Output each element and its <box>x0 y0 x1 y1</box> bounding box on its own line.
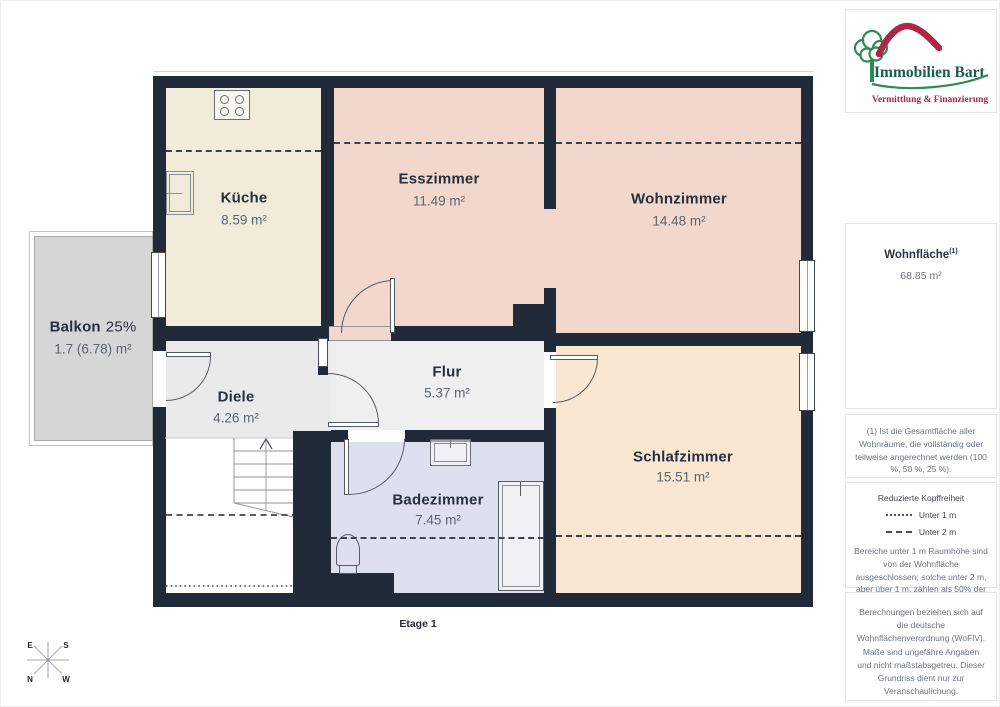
company-logo: Immobilien Bart Vermittlung & Finanzieru… <box>846 10 996 112</box>
door-leaf-esszimmer <box>390 278 395 333</box>
burner-icon <box>220 95 229 104</box>
compass-icon: E S N W <box>21 633 75 687</box>
room-area-flur: 5.37 m² <box>424 386 470 401</box>
wall-top <box>153 76 813 88</box>
logo-card: Immobilien Bart Vermittlung & Finanzieru… <box>845 9 997 113</box>
logo-tagline-text: Vermittlung & Finanzierung <box>872 95 989 105</box>
door-opening-balkon <box>153 351 166 407</box>
window-glazing <box>158 253 159 317</box>
room-area-schlafzimmer: 15.51 m² <box>656 470 709 485</box>
room-area-esszimmer: 11.49 m² <box>413 194 465 209</box>
disclaimer-text: Berechnungen beziehen sich auf die deuts… <box>855 606 987 698</box>
room-label-esszimmer: Esszimmer <box>398 171 479 188</box>
disclaimer-card: Berechnungen beziehen sich auf die deuts… <box>845 592 997 701</box>
living-area-card: Wohnfläche(1) 68.85 m² <box>845 223 997 409</box>
room-label-wohnzimmer: Wohnzimmer <box>631 191 727 208</box>
room-label-flur: Flur <box>432 364 461 381</box>
wall-wohn-bottom <box>556 333 813 346</box>
footnote-marker: (1) <box>949 248 958 255</box>
staircase <box>165 431 294 597</box>
floorplan-page: Küche 8.59 m² Esszimmer 11.49 m² Wohnzim… <box>0 0 1000 707</box>
room-label-badezimmer: Badezimmer <box>392 492 483 509</box>
dashed-line-sample <box>886 531 912 533</box>
roof-swoosh <box>879 26 939 54</box>
balkon-name: Balkon <box>50 319 101 336</box>
room-floor-wohnzimmer <box>556 88 801 333</box>
living-area-value: 68.85 m² <box>846 270 996 282</box>
sink-tap <box>450 440 451 448</box>
door-leaf-badezimmer <box>344 439 349 495</box>
stove-icon <box>214 90 250 120</box>
wall-ess-wohn-bottom <box>544 288 556 341</box>
burner-icon <box>235 95 244 104</box>
headroom-line-kueche <box>166 150 321 152</box>
legend-row-under-2m: Unter 2 m <box>846 527 996 537</box>
headroom-line-badezimmer <box>331 537 544 539</box>
room-area-diele: 4.26 m² <box>213 411 259 426</box>
wall-corner-block <box>513 304 544 341</box>
counter-handle <box>167 193 182 194</box>
footnote-text: (1) Ist die Gesamtfläche aller Wohnräume… <box>854 425 988 476</box>
room-label-diele: Diele <box>218 389 255 406</box>
window-wohnzimmer <box>799 260 815 332</box>
wall-bad-step <box>331 573 394 593</box>
headroom-line-wohnzimmer <box>556 142 801 144</box>
compass-west: W <box>62 675 70 684</box>
shower-tray <box>502 485 540 587</box>
compass-south: S <box>63 641 69 650</box>
eaves-line <box>153 71 813 72</box>
door-leaf-diele-flur <box>328 422 379 427</box>
window-kueche <box>151 252 166 318</box>
shower-icon <box>498 481 544 591</box>
wall-band-left <box>166 326 329 341</box>
kitchen-counter <box>166 171 194 215</box>
room-label-balkon: Balkon25% <box>50 319 137 336</box>
door-leaf-balkon <box>166 352 211 357</box>
compass-east: E <box>27 641 33 650</box>
legend-under-2m-label: Unter 2 m <box>919 527 956 537</box>
passage-ess-wohn <box>544 209 556 288</box>
headroom-line-schlafzimmer <box>556 535 801 537</box>
wall-ess-wohn-top <box>544 88 556 209</box>
room-area-balkon: 1.7 (6.78) m² <box>54 342 131 357</box>
room-label-schlafzimmer: Schlafzimmer <box>633 449 733 466</box>
legend-row-under-1m: Unter 1 m <box>846 510 996 520</box>
wall-flur-schlaf-bottom <box>544 408 556 593</box>
wall-stub-cap <box>318 367 328 375</box>
room-label-kueche: Küche <box>221 190 268 207</box>
window-glazing <box>807 354 808 410</box>
wall-stub-diele <box>318 338 328 367</box>
legend-under-1m-label: Unter 1 m <box>919 510 956 520</box>
wall-bad-topright <box>405 430 544 442</box>
wall-kueche-ess <box>321 88 334 328</box>
footnote-card: (1) Ist die Gesamtfläche aller Wohnräume… <box>845 414 997 478</box>
compass-north: N <box>27 675 33 684</box>
window-glazing <box>807 261 808 331</box>
room-area-kueche: 8.59 m² <box>221 213 267 228</box>
shower-tap <box>520 482 521 496</box>
dotted-line-sample <box>886 514 912 516</box>
legend-title: Reduzierte Kopffreiheit <box>846 493 996 503</box>
logo-name-text: Immobilien Bart <box>874 64 985 81</box>
door-leaf-schlafzimmer <box>550 355 598 360</box>
sink-icon <box>430 439 471 466</box>
headroom-line-esszimmer <box>334 142 544 144</box>
balkon-percentage: 25% <box>106 319 137 336</box>
toilet-base <box>339 565 357 574</box>
burner-icon <box>235 107 244 116</box>
living-area-title: Wohnfläche(1) <box>846 248 996 261</box>
legend-card: Reduzierte Kopffreiheit Unter 1 m Unter … <box>845 482 997 588</box>
room-area-wohnzimmer: 14.48 m² <box>652 214 705 229</box>
room-floor-balkon <box>34 236 153 441</box>
burner-icon <box>220 107 229 116</box>
room-area-badezimmer: 7.45 m² <box>415 513 461 528</box>
floorplan-canvas: Küche 8.59 m² Esszimmer 11.49 m² Wohnzim… <box>1 1 841 707</box>
wall-stair-bad <box>293 431 331 593</box>
window-schlafzimmer <box>799 353 815 411</box>
floor-level-label: Etage 1 <box>399 618 436 630</box>
